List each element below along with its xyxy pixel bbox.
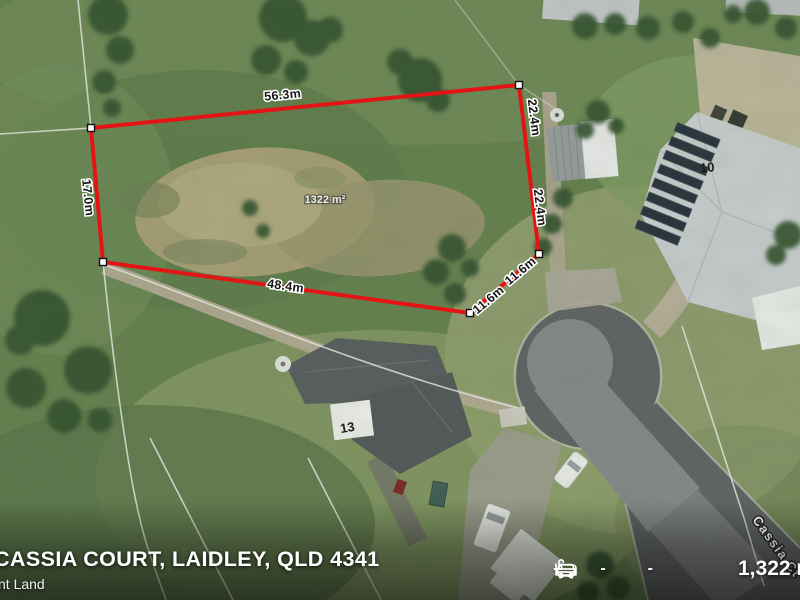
- measurement-diagonal-a: 11.6m: [470, 283, 507, 317]
- bath-icon: [614, 556, 640, 582]
- measurement-top: 56.3m: [264, 86, 302, 103]
- listing-address: CASSIA COURT, LAIDLEY, QLD 4341: [0, 547, 380, 572]
- parcel-area-label: 1322 m²: [305, 194, 346, 206]
- measurement-bottom: 48.4m: [266, 277, 305, 296]
- listing-facts: - - -: [553, 556, 687, 582]
- measurement-diagonal-b: 11.6m: [502, 254, 539, 288]
- listing-property-type: nt Land: [0, 576, 45, 592]
- baths-value: -: [600, 556, 605, 582]
- measurement-left: 17.0m: [79, 178, 97, 216]
- cars-value: -: [648, 556, 653, 582]
- car-icon: [661, 556, 687, 582]
- measurement-right-upper: 22.4m: [525, 98, 543, 136]
- listing-map-image[interactable]: 10 13 Cassia Ct 56.3m 22.4m 22.4m 17.0m …: [0, 0, 800, 600]
- land-area-value: 1,322 m²: [738, 557, 800, 581]
